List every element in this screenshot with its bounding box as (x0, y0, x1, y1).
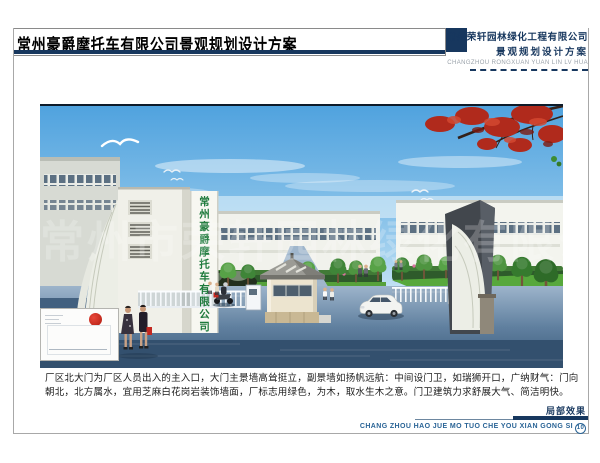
description-paragraph: 厂区北大门为厂区人员出入的主入口，大门主景墙高耸挺立，副景墙如扬帆远航：中间设门… (45, 372, 563, 399)
footer-rule-thick (513, 416, 588, 420)
rendering-image: 常州豪爵摩托车有限公司 常州市荣轩园林绿化有限公司 (40, 104, 563, 368)
presentation-board: 常州豪爵摩托车有限公司景观规划设计方案 常州荣轩园林绿化工程有限公司 景观规划设… (0, 0, 600, 463)
louver-vents (128, 200, 152, 259)
description-line-2: 朝北，北方属水，宜用芝麻白花岗岩装饰墙面，厂标志用绿色，为木，取水生木之意。门卫… (45, 386, 563, 400)
inset-plan-line (49, 349, 107, 350)
inset-text-line (45, 323, 61, 324)
footer-pinyin-text: CHANG ZHOU HAO JUE MO TUO CHE YOU XIAN G… (360, 423, 573, 430)
right-gate-pylon (445, 200, 496, 334)
inset-text-line (45, 315, 63, 316)
site-plan-inset (40, 308, 119, 361)
gate-control-box (246, 285, 261, 310)
page-number-badge: 10 (575, 423, 586, 434)
inset-plan-drawing (47, 325, 111, 355)
inset-text-line (45, 319, 59, 320)
footer-pinyin: CHANG ZHOU HAO JUE MO TUO CHE YOU XIAN G… (360, 423, 586, 434)
description-line-1: 厂区北大门为厂区人员出入的主入口，大门主景墙高耸挺立，副景墙如扬帆远航：中间设门… (45, 372, 563, 386)
gate-sign-vertical-text: 常州豪爵摩托车有限公司 (190, 196, 217, 334)
photo-top-border (40, 104, 563, 106)
